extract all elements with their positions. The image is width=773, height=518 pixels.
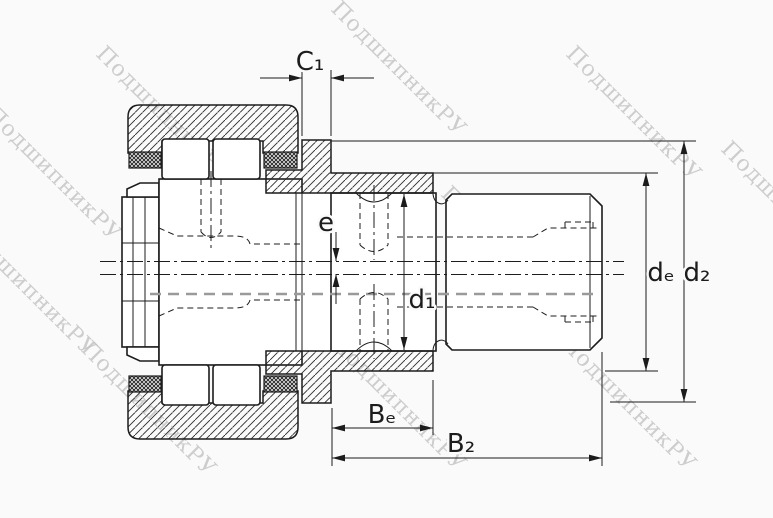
- label-b2: B₂: [447, 429, 475, 459]
- stud-middle: [331, 193, 436, 351]
- seal-top-left: [129, 152, 161, 168]
- drawing-canvas: ПодшипникРУ ПодшипникРУ ПодшипникРУ Подш…: [0, 0, 773, 518]
- roller: [162, 365, 209, 405]
- label-e: e: [318, 208, 334, 238]
- label-d2: d₂: [684, 258, 711, 288]
- label-d1: d₁: [409, 285, 436, 315]
- seal-bottom-left: [129, 376, 161, 392]
- roller: [162, 139, 209, 179]
- label-be: Bₑ: [368, 400, 397, 430]
- inner-race: [159, 179, 302, 365]
- stud-left-end: [122, 197, 159, 347]
- stud-body: [122, 179, 602, 365]
- technical-drawing: ПодшипникРУ ПодшипникРУ ПодшипникРУ Подш…: [0, 0, 773, 518]
- seal-top-right: [264, 152, 297, 168]
- roller: [213, 365, 260, 405]
- label-de: dₑ: [647, 258, 674, 288]
- label-c1: C₁: [296, 47, 325, 77]
- seal-bottom-right: [264, 376, 297, 392]
- roller: [213, 139, 260, 179]
- thread-section: [446, 194, 602, 350]
